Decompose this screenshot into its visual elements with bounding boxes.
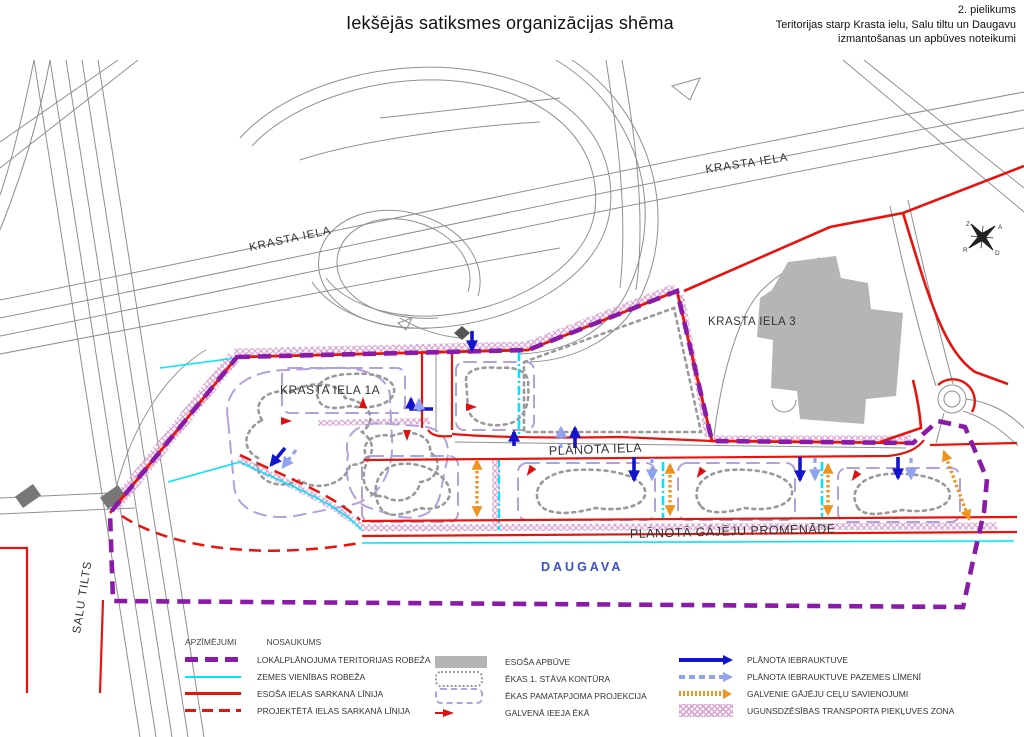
legend-item-land-unit-boundary: ZEMES VIENĪBAS ROBEŽA [185, 668, 431, 685]
legend-item-label: PROJEKTĒTĀ IELAS SARKANĀ LĪNIJA [257, 706, 410, 716]
bridge-pier [15, 484, 41, 508]
legend-item-fire-access-zone: UGUNSDZĒSĪBAS TRANSPORTA PIEKĻUVES ZONA [679, 702, 954, 719]
legend-headers: APZĪMĒJUMI NOSAUKUMS [185, 633, 431, 651]
label-planota-iela: PLĀNOTA IELA [549, 441, 643, 458]
legend-item-label: UGUNSDZĒSĪBAS TRANSPORTA PIEKĻUVES ZONA [747, 706, 954, 716]
legend-item-planned-driveway: PLĀNOTA IEBRAUKTUVE [679, 651, 954, 668]
legend-item-label: PLĀNOTA IEBRAUKTUVE [747, 655, 848, 665]
projected-red-line-swatch [185, 709, 243, 712]
annotation-line: izmantošanas un apbūves noteikumi [776, 32, 1016, 47]
legend: APZĪMĒJUMI NOSAUKUMS LOKĀLPLĀNOJUMA TERI… [185, 633, 985, 733]
legend-column-arrows: PLĀNOTA IEBRAUKTUVE PLĀNOTA IEBRAUKTUVE … [679, 651, 954, 719]
legend-item-existing-red-line: ESOŠA IELAS SARKANĀ LĪNIJA [185, 685, 431, 702]
volume-projection-swatch [435, 688, 501, 704]
building-krasta-3 [757, 256, 903, 424]
label-salu-tilts: SALU TILTS [71, 560, 94, 634]
label-daugava: DAUGAVA [541, 560, 623, 574]
pedestrian-connections-swatch [679, 689, 741, 699]
legend-item-first-floor-contour: ĒKAS 1. STĀVA KONTŪRA [435, 670, 647, 687]
page-title: Iekšējās satiksmes organizācijas shēma [320, 13, 700, 34]
legend-item-label: LOKĀLPLĀNOJUMA TERITORIJAS ROBEŽA [257, 655, 431, 665]
planned-driveway-swatch [679, 655, 741, 665]
underground-driveway-swatch [679, 672, 741, 682]
legend-item-label: PLĀNOTA IEBRAUKTUVE PAZEMES LĪMENĪ [747, 672, 921, 682]
compass-rose: Z A D R [958, 213, 1006, 261]
label-krasta-iela-ne: KRASTA IELA [705, 152, 790, 176]
legend-column-buildings: ESOŠA APBŪVE ĒKAS 1. STĀVA KONTŪRA ĒKAS … [435, 653, 647, 721]
compass-east-label: A [998, 224, 1003, 231]
red-street-lines [0, 166, 1024, 693]
legend-item-label: GALVENĀ IEEJA ĒKĀ [505, 708, 589, 718]
land-unit-boundary-swatch [185, 676, 243, 678]
legend-item-main-entrance: GALVENĀ IEEJA ĒKĀ [435, 704, 647, 721]
legend-item-label: ESOŠA IELAS SARKANĀ LĪNIJA [257, 689, 383, 699]
existing-building-swatch [435, 656, 501, 668]
annotation-line: 2. pielikums [776, 3, 1016, 18]
existing-red-line-swatch [185, 692, 243, 695]
legend-column-lines: APZĪMĒJUMI NOSAUKUMS LOKĀLPLĀNOJUMA TERI… [185, 633, 431, 719]
label-krasta-iela-3: KRASTA IELA 3 [708, 316, 796, 328]
legend-item-volume-projection: ĒKAS PAMATAPJOMA PROJEKCIJA [435, 687, 647, 704]
legend-header-names: NOSAUKUMS [266, 637, 321, 647]
label-krasta-iela-1a: KRASTA IELA 1A [280, 383, 380, 397]
legend-item-label: ZEMES VIENĪBAS ROBEŽA [257, 672, 365, 682]
main-entrance-swatch [435, 709, 501, 717]
legend-item-label: ĒKAS 1. STĀVA KONTŪRA [505, 674, 610, 684]
compass-south-label: D [995, 250, 1000, 257]
legend-item-label: ĒKAS PAMATAPJOMA PROJEKCIJA [505, 691, 647, 701]
annotation-block: 2. pielikums Teritorijas starp Krasta ie… [776, 3, 1016, 47]
legend-item-label: ESOŠA APBŪVE [505, 657, 570, 667]
site-plan-map: Z A D R KRASTA IELA KRASTA IELA KRASTA I… [0, 0, 1024, 737]
legend-item-territory-boundary: LOKĀLPLĀNOJUMA TERITORIJAS ROBEŽA [185, 651, 431, 668]
legend-item-projected-red-line: PROJEKTĒTĀ IELAS SARKANĀ LĪNIJA [185, 702, 431, 719]
first-floor-contour-swatch [435, 671, 501, 687]
legend-header-symbols: APZĪMĒJUMI [185, 637, 236, 647]
territory-boundary-swatch [185, 657, 243, 662]
label-krasta-iela-nw: KRASTA IELA [248, 225, 332, 254]
legend-item-label: GALVENIE GĀJĒJU CEĻU SAVIENOJUMI [747, 689, 908, 699]
roundabout [938, 385, 966, 413]
compass-north-label: Z [966, 221, 970, 228]
legend-item-pedestrian-connections: GALVENIE GĀJĒJU CEĻU SAVIENOJUMI [679, 685, 954, 702]
fire-access-zone-swatch [679, 704, 741, 717]
compass-west-label: R [963, 247, 968, 254]
legend-item-underground-driveway: PLĀNOTA IEBRAUKTUVE PAZEMES LĪMENĪ [679, 668, 954, 685]
plan-sheet: Z A D R KRASTA IELA KRASTA IELA KRASTA I… [0, 0, 1024, 737]
annotation-line: Teritorijas starp Krasta ielu, Salu tilt… [776, 18, 1016, 33]
legend-item-existing-building: ESOŠA APBŪVE [435, 653, 647, 670]
